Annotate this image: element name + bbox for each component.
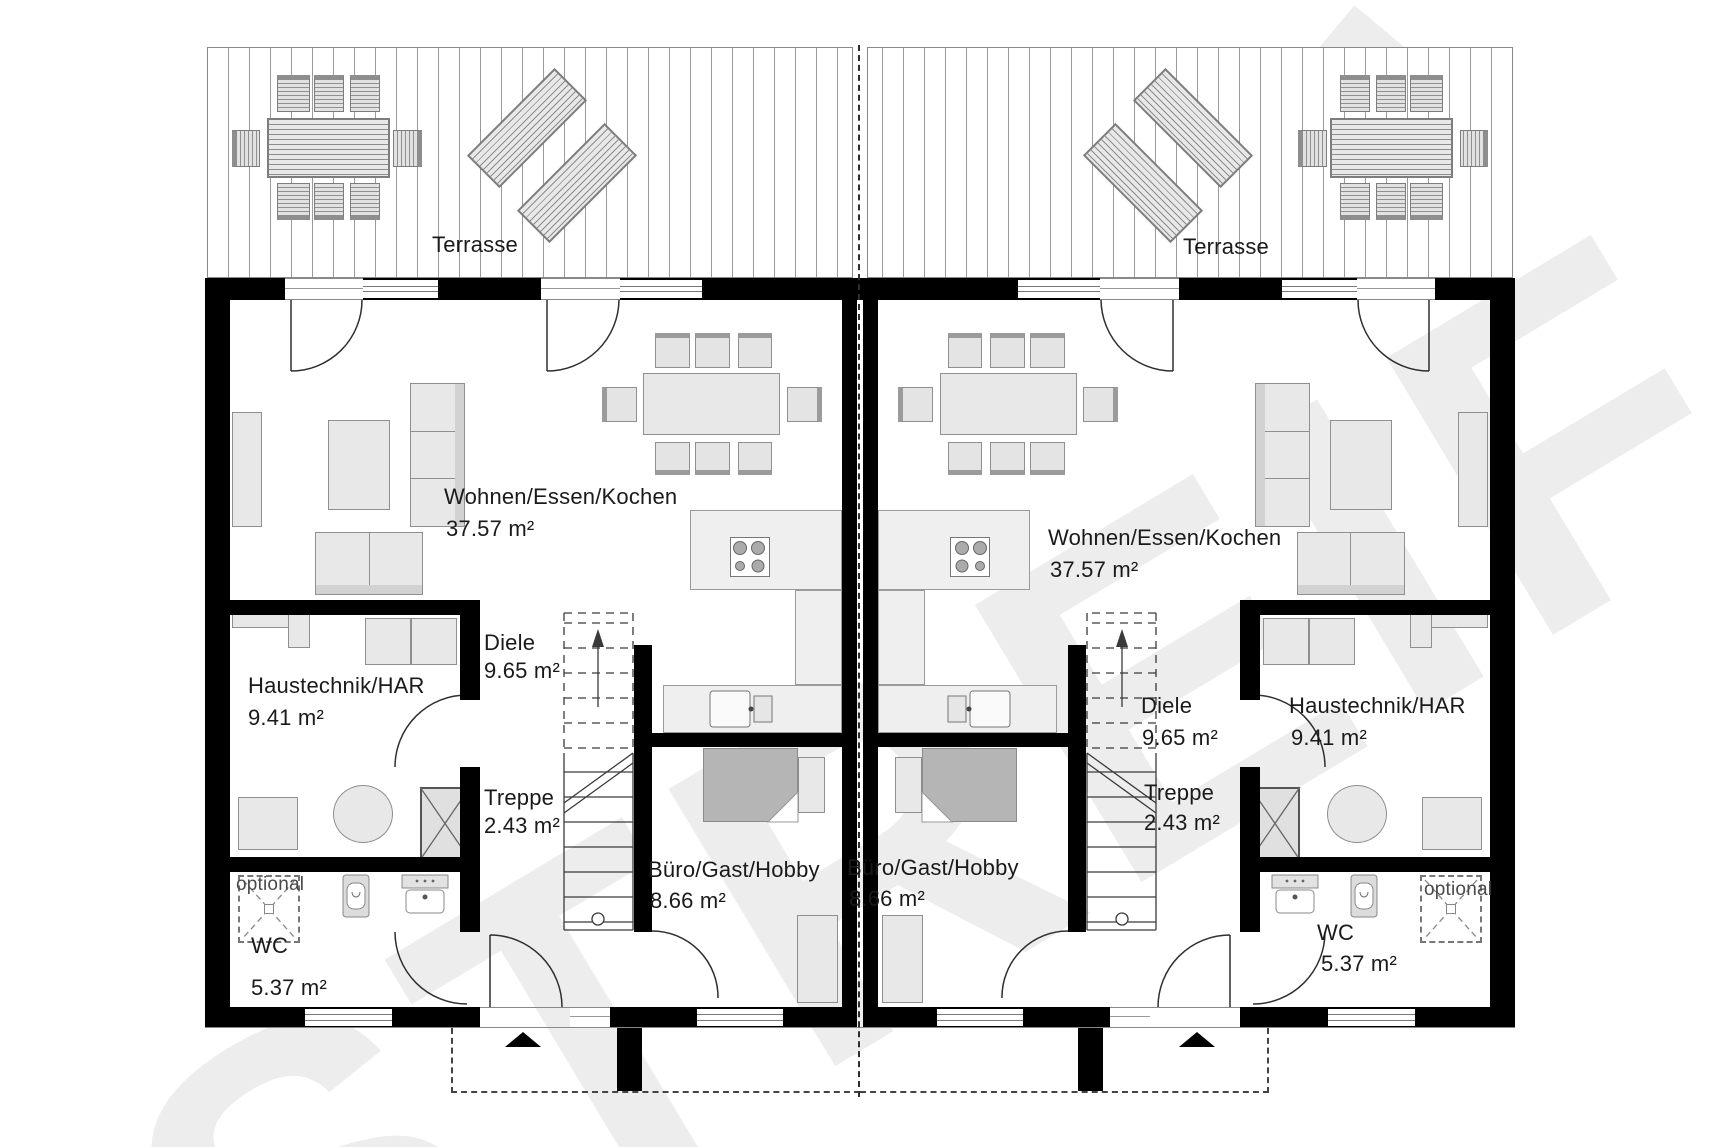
room-label-wohnen-left: Wohnen/Essen/Kochen	[444, 484, 677, 510]
room-area-wohnen-left: 37.57 m²	[446, 516, 534, 542]
floor-plan: STREIF	[0, 0, 1720, 1147]
room-area-buero-left: 8.66 m²	[650, 888, 726, 914]
room-area-wc-right: 5.37 m²	[1321, 951, 1397, 977]
labels-layer: Terrasse Terrasse Wohnen/Essen/Kochen 37…	[0, 0, 1720, 1147]
terrace-label-right: Terrasse	[1183, 234, 1269, 260]
room-area-treppe-left: 2.43 m²	[484, 813, 560, 839]
terrace-label-left: Terrasse	[432, 232, 518, 258]
room-label-buero-left: Büro/Gast/Hobby	[648, 857, 820, 883]
room-label-wc-left: WC	[251, 933, 288, 959]
room-area-wc-left: 5.37 m²	[251, 975, 327, 1001]
room-area-diele-left: 9.65 m²	[484, 658, 560, 684]
room-label-buero-right: Büro/Gast/Hobby	[847, 855, 1019, 881]
room-area-diele-right: 9.65 m²	[1142, 725, 1218, 751]
room-area-treppe-right: 2.43 m²	[1144, 810, 1220, 836]
room-label-diele-left: Diele	[484, 630, 535, 656]
room-label-haustechnik-left: Haustechnik/HAR	[248, 673, 425, 699]
room-label-wc-right: WC	[1317, 920, 1354, 946]
room-area-buero-right: 8.66 m²	[849, 886, 925, 912]
room-area-haustechnik-right: 9.41 m²	[1291, 725, 1367, 751]
optional-label-left: optional	[236, 874, 304, 896]
room-label-treppe-left: Treppe	[484, 785, 554, 811]
room-label-haustechnik-right: Haustechnik/HAR	[1289, 693, 1466, 719]
optional-label-right: optional	[1424, 879, 1492, 901]
room-label-treppe-right: Treppe	[1144, 780, 1214, 806]
room-label-diele-right: Diele	[1141, 693, 1192, 719]
room-area-wohnen-right: 37.57 m²	[1050, 557, 1138, 583]
room-area-haustechnik-left: 9.41 m²	[248, 705, 324, 731]
room-label-wohnen-right: Wohnen/Essen/Kochen	[1048, 525, 1281, 551]
